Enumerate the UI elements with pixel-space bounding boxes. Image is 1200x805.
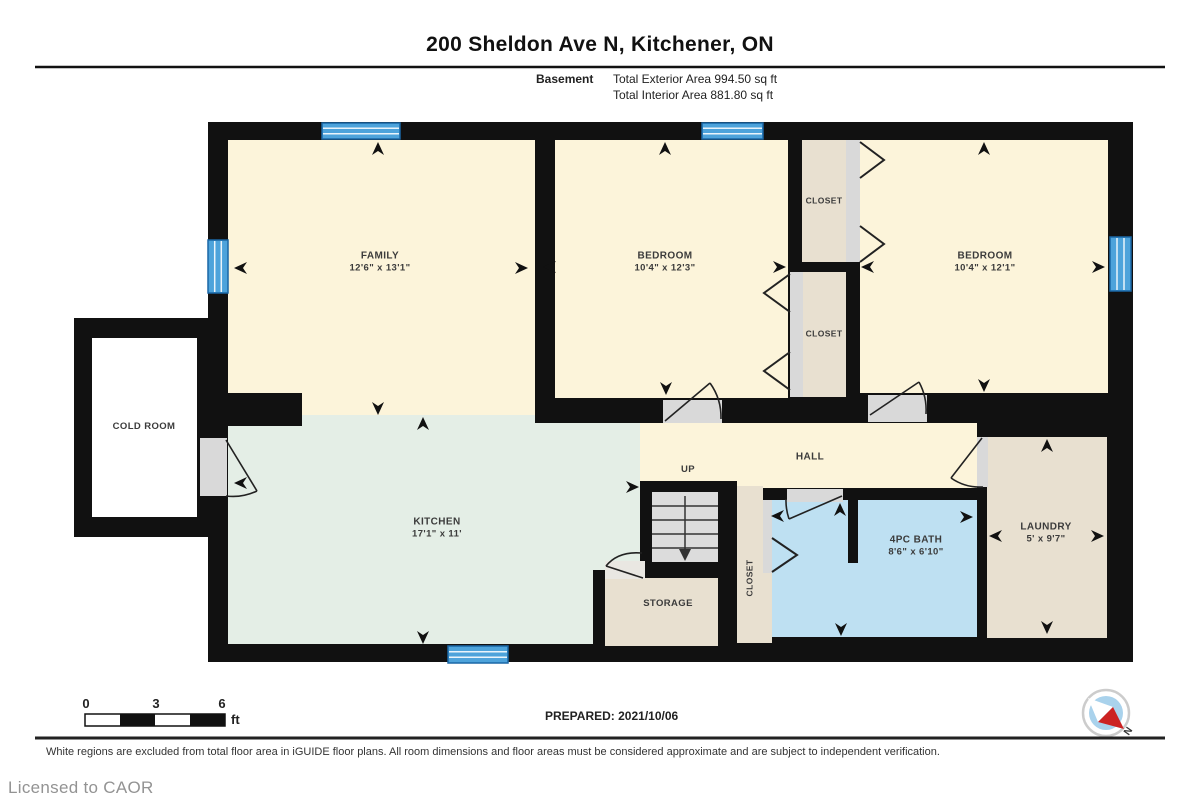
scale-tick-6: 6: [218, 696, 225, 711]
room-label-family: FAMILY 12'6" x 13'1": [350, 249, 411, 274]
bath-area: [772, 500, 977, 637]
room-label-bath: 4PC BATH 8'6" x 6'10": [888, 533, 943, 558]
window: [208, 240, 228, 293]
family-room-area: [228, 140, 535, 415]
scale-tick-3: 3: [152, 696, 159, 711]
scale-bar: [85, 714, 225, 726]
cold-room-door: [200, 438, 227, 496]
disclaimer-text: White regions are excluded from total fl…: [46, 746, 940, 758]
scale-unit: ft: [231, 712, 240, 727]
window: [1110, 237, 1131, 291]
room-label-bedroom2: BEDROOM 10'4" x 12'1": [955, 249, 1016, 274]
floor-label: Basement: [536, 72, 593, 86]
bedroom2-door: [868, 395, 927, 422]
storage-area: [605, 578, 718, 646]
room-label-hall: HALL: [796, 451, 824, 464]
floorplan-graphic: [0, 0, 1200, 805]
prepared-date: PREPARED: 2021/10/06: [545, 709, 678, 723]
room-label-closet1: CLOSET: [806, 195, 843, 206]
license-text: Licensed to CAOR: [8, 778, 154, 798]
laundry-door: [977, 437, 988, 487]
floorplan-page: 200 Sheldon Ave N, Kitchener, ON Basemen…: [0, 0, 1200, 805]
scale-tick-0: 0: [82, 696, 89, 711]
room-label-cold-room: COLD ROOM: [113, 421, 176, 433]
interior-area: Total Interior Area 881.80 sq ft: [613, 88, 773, 102]
room-label-laundry: LAUNDRY 5' x 9'7": [1020, 520, 1071, 545]
window: [322, 123, 400, 139]
room-label-storage: STORAGE: [643, 598, 693, 610]
window: [702, 123, 763, 139]
window: [448, 646, 508, 663]
kitchen-area: [228, 415, 535, 644]
bedroom1-door: [663, 400, 722, 423]
stairs-up-label: UP: [681, 464, 695, 476]
room-label-bedroom1: BEDROOM 10'4" x 12'3": [635, 249, 696, 274]
room-label-kitchen: KITCHEN 17'1" x 11': [412, 515, 462, 540]
exterior-area: Total Exterior Area 994.50 sq ft: [613, 72, 777, 86]
page-title: 200 Sheldon Ave N, Kitchener, ON: [0, 33, 1200, 57]
room-label-closet2: CLOSET: [806, 328, 843, 339]
room-label-closet3: CLOSET: [744, 560, 755, 597]
